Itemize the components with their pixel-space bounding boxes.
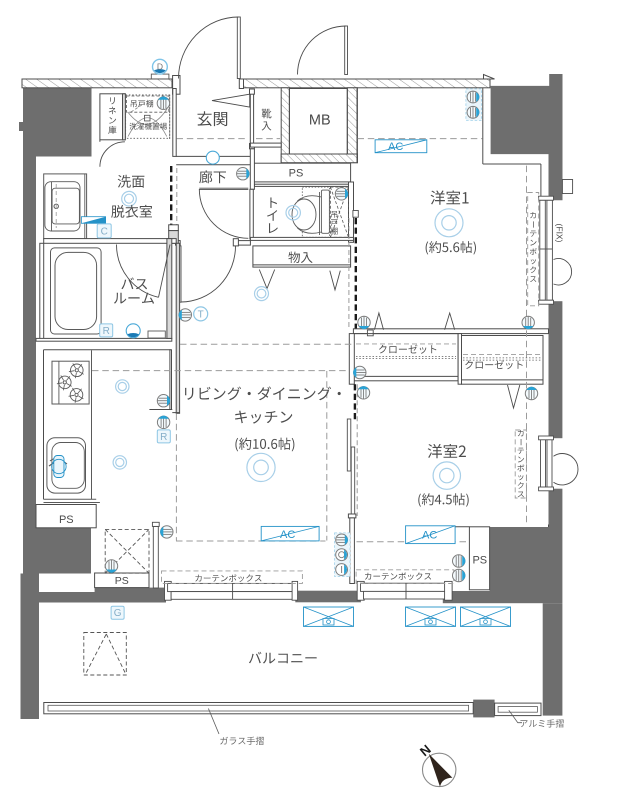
svg-text:D: D: [157, 61, 163, 71]
svg-text:PS: PS: [115, 575, 129, 587]
svg-text:PS: PS: [59, 514, 74, 526]
svg-text:G: G: [114, 608, 122, 619]
svg-text:T: T: [198, 309, 204, 320]
svg-text:PS: PS: [289, 167, 304, 179]
svg-text:C: C: [101, 226, 108, 237]
svg-text:PS: PS: [472, 555, 487, 567]
svg-text:AC: AC: [388, 141, 403, 153]
svg-text:AC: AC: [422, 530, 437, 542]
svg-text:R: R: [103, 326, 110, 337]
svg-text:R: R: [160, 432, 167, 443]
svg-text:(FIX): (FIX): [555, 224, 565, 243]
svg-text:AC: AC: [280, 529, 295, 541]
svg-text:MB: MB: [309, 112, 331, 128]
